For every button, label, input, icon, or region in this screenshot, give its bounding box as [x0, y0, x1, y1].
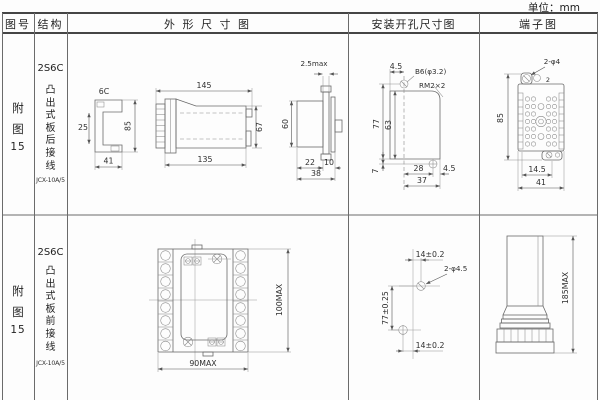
- datasheet-page: 单位：mm 图号 结构 外 形 尺 寸 图 安装开孔尺寸图 端子图 附 图 15…: [0, 0, 600, 400]
- dim-77: 77: [372, 119, 381, 129]
- dim-60: 60: [281, 119, 290, 129]
- dim-185max: 185MAX: [561, 271, 570, 304]
- terminal-tab-label: 2: [546, 76, 550, 84]
- terminal-hole-label: 2-φ4: [544, 57, 561, 66]
- dim-38: 38: [311, 169, 321, 178]
- front-view-drawing: 90MAX 100MAX: [149, 239, 291, 372]
- corner-radius-label: RM2×2: [419, 81, 445, 90]
- dim-4-5-top: 4.5: [390, 62, 402, 71]
- dim-41-terminal: 41: [536, 178, 546, 187]
- dim-67: 67: [255, 122, 264, 132]
- dim-90max: 90MAX: [189, 359, 217, 368]
- dim-14-top: 14±0.2: [416, 250, 445, 259]
- mounting-hole-label: 2-φ4.5: [444, 264, 467, 273]
- dim-25: 25: [78, 123, 88, 132]
- mounting-cutout-drawing: B6(φ3.2) RM2×2 4.5 77 63 7 28 4.5 37: [371, 62, 455, 190]
- dim-4-5-right: 4.5: [443, 164, 455, 173]
- terminal-side-profile: 185MAX: [496, 236, 577, 353]
- technical-drawings: 6C 25 85 41: [0, 0, 600, 400]
- dim-100max: 100MAX: [275, 283, 284, 316]
- outline-cross-section-view: 2.5max 60 22 10 38: [281, 59, 342, 181]
- dim-85-terminal: 85: [496, 113, 505, 123]
- dim-85: 85: [124, 121, 133, 131]
- dim-28: 28: [414, 164, 424, 173]
- dim-2-5-max: 2.5max: [300, 59, 328, 68]
- dim-10: 10: [324, 158, 334, 167]
- dim-41: 41: [104, 157, 114, 166]
- dim-135: 135: [198, 155, 213, 164]
- dim-14-5: 14.5: [528, 165, 545, 174]
- dim-7: 7: [371, 168, 380, 173]
- mounting-hole-label: B6(φ3.2): [415, 67, 446, 76]
- terminal-holes: [525, 97, 556, 146]
- dim-77-tol: 77±0.25: [381, 291, 390, 325]
- dim-22: 22: [305, 158, 315, 167]
- mounting-holes-drawing: 2-φ4.5 14±0.2 77±0.25 14±0.2: [381, 249, 467, 359]
- screw-terminals: [158, 251, 248, 351]
- dim-145: 145: [197, 81, 212, 90]
- case-type-label: 6C: [99, 87, 110, 96]
- terminal-block-drawing: 2 2-φ4 85 14.5 41: [496, 57, 564, 191]
- outline-side-profile-view: 6C 25 85 41: [78, 87, 138, 170]
- dim-37: 37: [417, 176, 427, 185]
- dim-14-bottom: 14±0.2: [416, 341, 445, 350]
- outline-long-side-view: 145 135 67: [156, 81, 264, 168]
- dim-63: 63: [384, 120, 393, 130]
